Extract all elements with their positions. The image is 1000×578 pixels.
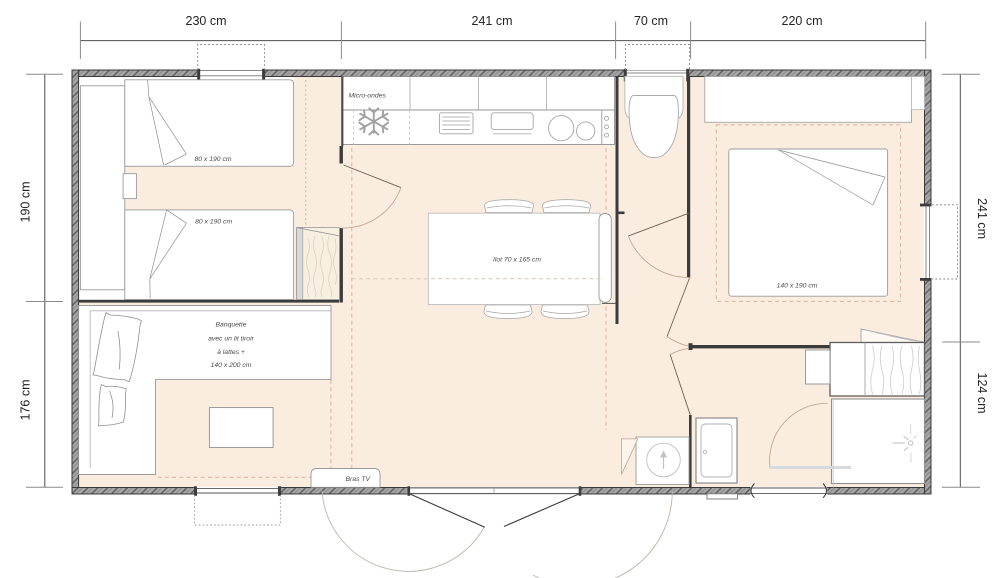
svg-text:124 cm: 124 cm bbox=[975, 373, 989, 414]
svg-text:176 cm: 176 cm bbox=[18, 380, 32, 421]
svg-text:140 x 190 cm: 140 x 190 cm bbox=[777, 283, 818, 290]
svg-text:241 cm: 241 cm bbox=[975, 198, 989, 239]
svg-text:80 x 190 cm: 80 x 190 cm bbox=[194, 156, 231, 163]
svg-text:Bras TV: Bras TV bbox=[346, 476, 372, 483]
svg-text:Banquette: Banquette bbox=[216, 322, 247, 329]
svg-text:à lattes +: à lattes + bbox=[217, 349, 245, 356]
svg-text:80 x 190 cm: 80 x 190 cm bbox=[195, 219, 232, 226]
svg-text:190 cm: 190 cm bbox=[18, 182, 32, 223]
svg-text:70 cm: 70 cm bbox=[634, 14, 668, 28]
svg-text:Micro-ondes: Micro-ondes bbox=[349, 93, 387, 100]
svg-text:140 x 200 cm: 140 x 200 cm bbox=[211, 362, 252, 369]
svg-text:220 cm: 220 cm bbox=[782, 14, 823, 28]
svg-text:230 cm: 230 cm bbox=[186, 14, 227, 28]
svg-text:241 cm: 241 cm bbox=[472, 14, 513, 28]
svg-text:avec un lit tiroir: avec un lit tiroir bbox=[208, 336, 254, 343]
svg-text:îlot 70 x 165 cm: îlot 70 x 165 cm bbox=[493, 257, 541, 264]
